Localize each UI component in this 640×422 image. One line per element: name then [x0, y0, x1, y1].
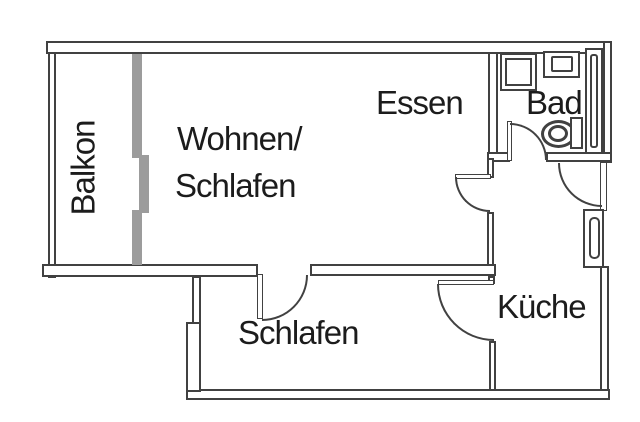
- toilet-bowl-inner-icon: [548, 125, 568, 142]
- room-label-wohnen-line1: Wohnen/: [177, 122, 301, 155]
- entrance-door-swing-arc: [558, 163, 602, 207]
- bad-window-strip-inner: [590, 54, 598, 148]
- hall-door-swing-arc: [455, 177, 490, 212]
- wall-livingroom-bottom-left: [42, 264, 258, 277]
- room-label-wohnen-line2: Schlafen: [175, 169, 295, 202]
- wall-livingroom-bottom-right: [310, 264, 496, 276]
- room-label-kueche: Küche: [497, 290, 586, 323]
- room-label-essen: Essen: [376, 86, 463, 119]
- room-label-balkon: Balkon: [67, 121, 100, 216]
- wall-balcony-left: [48, 52, 56, 278]
- room-label-schlafen: Schlafen: [238, 316, 358, 349]
- balcony-slider-segment-middle: [139, 155, 149, 213]
- sink-basin-icon: [551, 56, 573, 72]
- kueche-window-inner: [589, 217, 600, 259]
- balcony-slider-segment-top: [132, 54, 142, 158]
- wall-right-upper: [603, 41, 612, 163]
- toilet-cistern-icon: [570, 117, 583, 149]
- wall-bottom-outer: [186, 389, 610, 400]
- wall-right-lower: [600, 266, 609, 391]
- wall-bad-left: [488, 52, 498, 158]
- wall-schlafen-left-upper: [192, 276, 201, 324]
- wall-schlafen-left-lower: [186, 322, 201, 392]
- balcony-slider-segment-bottom: [132, 210, 142, 265]
- kueche-door-swing-arc: [437, 284, 494, 341]
- room-label-bad: Bad: [526, 86, 582, 119]
- wall-hall-lower: [487, 212, 494, 266]
- wall-divider-schlafen-kueche: [489, 341, 496, 391]
- floor-plan: Balkon Wohnen/ Schlafen Essen Bad Küche …: [0, 0, 640, 422]
- shower-inner-icon: [505, 58, 532, 86]
